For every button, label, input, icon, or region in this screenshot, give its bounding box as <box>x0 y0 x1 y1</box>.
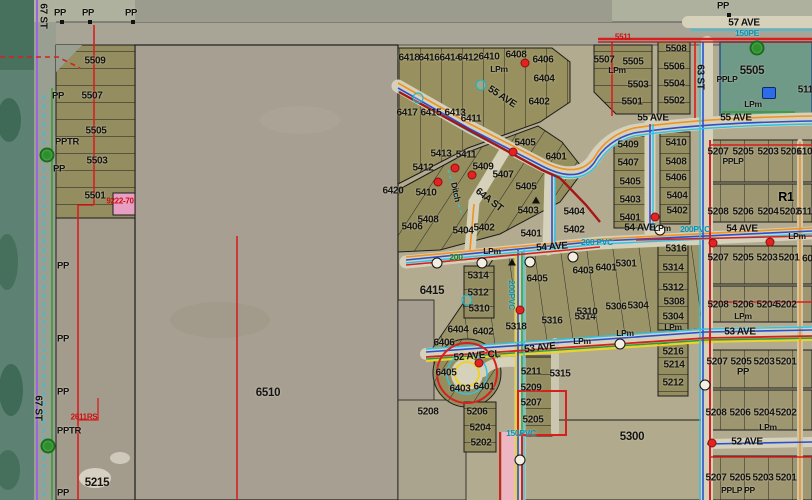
west-lot-column <box>56 45 135 218</box>
block-5316-column <box>658 238 688 330</box>
map-canvas <box>0 0 812 500</box>
teal-parcel-5505 <box>720 42 812 118</box>
block-5216-column <box>658 344 688 396</box>
block-5410-column <box>660 132 690 224</box>
block-5409-column <box>614 134 646 228</box>
block-5206-column <box>464 402 496 452</box>
pink-parcel <box>113 193 135 215</box>
block-5508-column <box>658 42 690 114</box>
block-5314-column <box>464 266 494 318</box>
map-viewport[interactable]: PPPPPP67 ST67 ST5509PP55075505PPTR5503PP… <box>0 0 812 500</box>
